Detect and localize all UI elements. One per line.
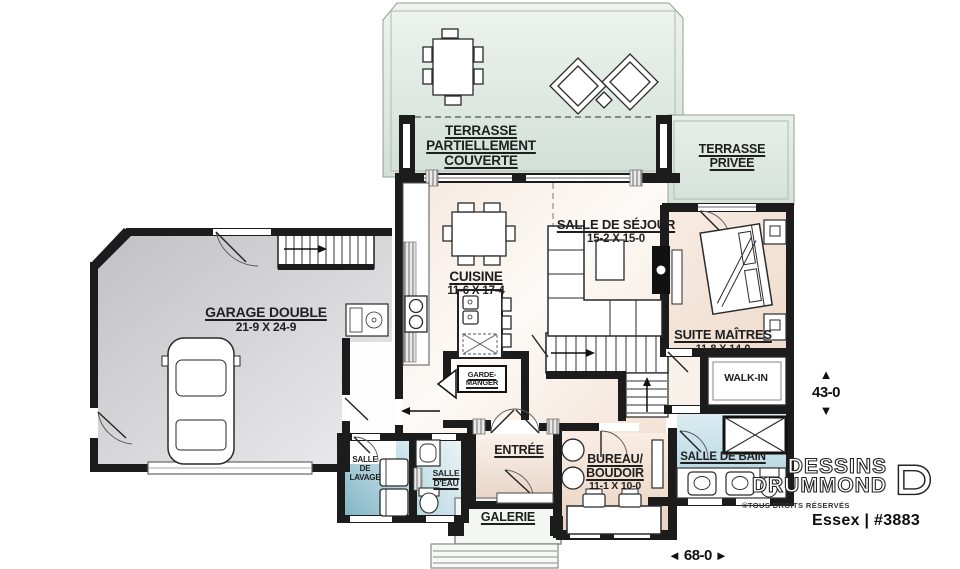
drummond-d-logo-icon — [892, 457, 934, 499]
room-name: GARDE- MANGER — [466, 371, 498, 388]
room-dims: 11-8 X 14-0 — [656, 343, 790, 355]
label-galerie: GALERIE — [463, 510, 553, 524]
label-garage: GARAGE DOUBLE 21-9 X 24-9 — [138, 289, 394, 350]
label-bureau-boudoir: BUREAU/ BOUDOIR 11-1 X 10-0 — [573, 438, 657, 507]
label-salle-d-eau: SALLE D'EAU — [424, 469, 468, 488]
label-terrasse-privee: TERRASSE PRIVÉE — [678, 142, 786, 170]
copyright-text: ©TOUS DROITS RÉSERVÉS — [742, 501, 934, 510]
dimension-width-value: 68-0 — [684, 547, 712, 564]
room-name: SALLE DE SÉJOUR — [557, 217, 675, 232]
room-name: CUISINE — [449, 269, 502, 284]
label-cuisine: CUISINE 11-6 X 17-4 — [418, 254, 534, 313]
plan-model-number: Essex | #3883 — [812, 512, 920, 530]
label-salle-de-lavage: SALLE DE LAVAGE — [340, 456, 390, 483]
arrow-right-icon: ► — [715, 549, 728, 562]
label-entree: ENTRÉE — [487, 443, 551, 457]
label-terrasse-couverte: TERRASSE PARTIELLEMENT COUVERTE — [392, 123, 570, 168]
room-dims: 15-2 X 15-0 — [548, 233, 684, 246]
entry-closet — [497, 493, 553, 503]
dimension-height: ▲ 43-0 ▼ — [804, 368, 848, 417]
floor-plan: TERRASSE PARTIELLEMENT COUVERTE TERRASSE… — [0, 0, 960, 569]
brand-name-line2: DRUMMOND — [752, 476, 887, 495]
arrow-left-icon: ◄ — [668, 549, 681, 562]
arrow-up-icon: ▲ — [820, 368, 833, 381]
label-suite-maitres: SUITE MAÎTRES 11-8 X 14-0 — [656, 313, 790, 370]
brand-logo: DESSINS DRUMMOND ©TOUS DROITS RÉSERVÉS — [742, 457, 934, 510]
room-dims: 11-1 X 10-0 — [573, 481, 657, 493]
room-dims: 11-6 X 17-4 — [418, 285, 534, 298]
label-walk-in: WALK-IN — [704, 373, 788, 385]
dimension-width: ◄ 68-0 ► — [668, 547, 728, 564]
label-salle-de-sejour: SALLE DE SÉJOUR 15-2 X 15-0 — [548, 203, 684, 261]
room-name: SUITE MAÎTRES — [674, 327, 772, 342]
room-name: GARAGE DOUBLE — [205, 304, 327, 320]
room-dims: 21-9 X 24-9 — [138, 321, 394, 334]
arrow-down-icon: ▼ — [820, 404, 833, 417]
room-name: BUREAU/ BOUDOIR — [586, 452, 644, 480]
garage-car — [162, 338, 240, 464]
dimension-height-value: 43-0 — [812, 384, 840, 401]
label-garde-manger: GARDE- MANGER — [457, 365, 507, 393]
